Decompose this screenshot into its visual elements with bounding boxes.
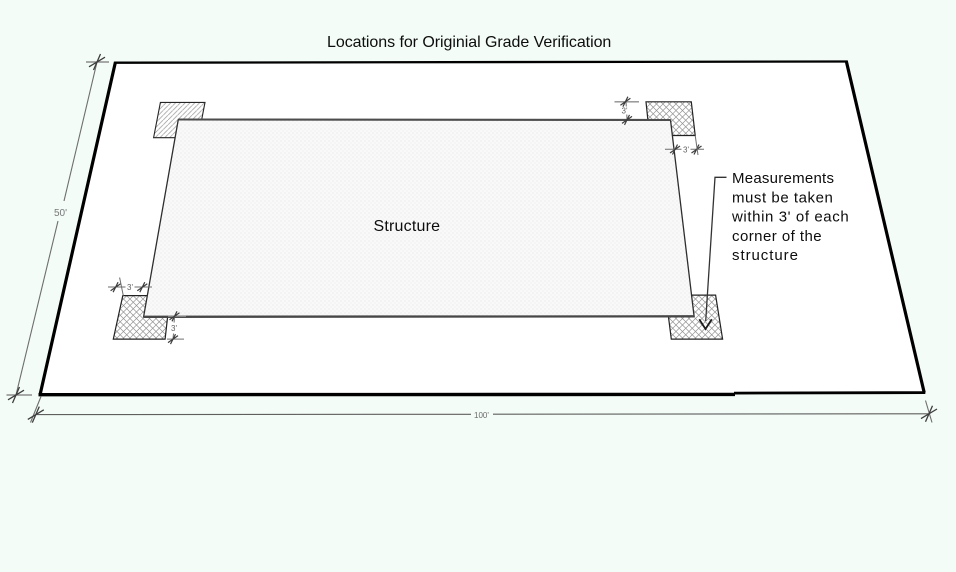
svg-text:3': 3' xyxy=(683,145,689,154)
svg-text:100': 100' xyxy=(474,411,489,420)
svg-text:3': 3' xyxy=(171,324,177,333)
svg-text:must be taken: must be taken xyxy=(732,189,833,206)
svg-text:within 3' of each: within 3' of each xyxy=(731,209,849,226)
svg-text:corner of the: corner of the xyxy=(732,228,822,245)
svg-text:50': 50' xyxy=(54,208,67,219)
svg-text:3': 3' xyxy=(622,107,628,116)
svg-text:Structure: Structure xyxy=(374,218,441,235)
svg-text:Measurements: Measurements xyxy=(732,170,834,187)
svg-text:3': 3' xyxy=(127,283,133,292)
svg-text:structure: structure xyxy=(732,247,799,264)
svg-text:Locations for Originial Grade: Locations for Originial Grade Verificati… xyxy=(327,34,611,51)
